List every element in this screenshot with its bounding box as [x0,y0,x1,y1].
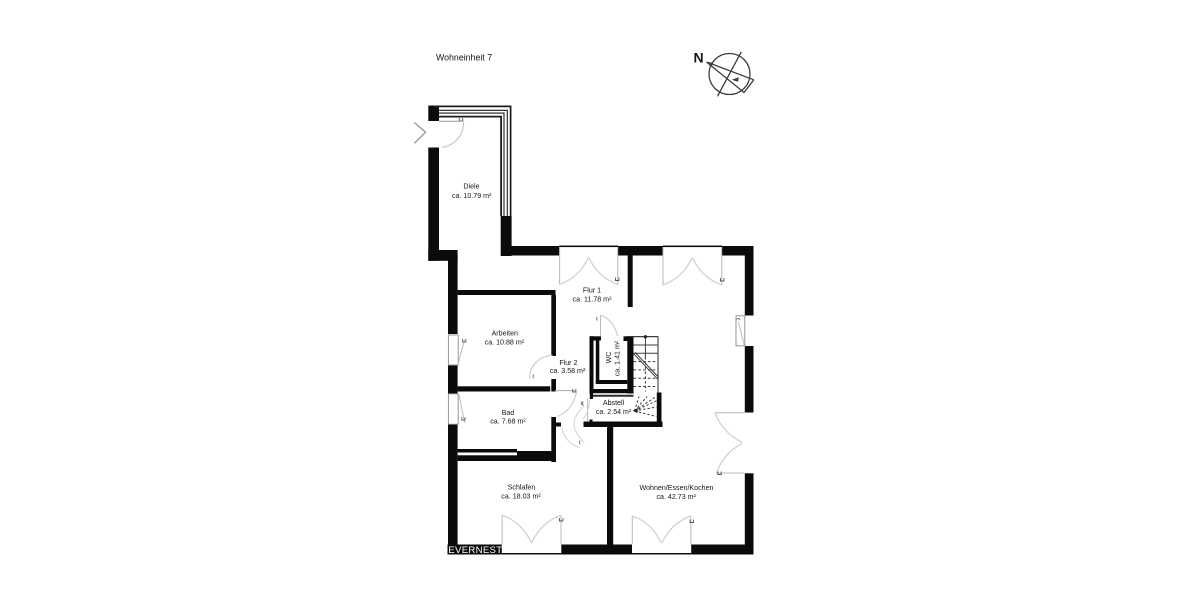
svg-text:ca. 1.41 m²: ca. 1.41 m² [614,340,622,376]
svg-text:Abstell: Abstell [603,399,625,407]
svg-text:ca. 11.78 m²: ca. 11.78 m² [573,295,613,303]
svg-text:Wohneinheit 7: Wohneinheit 7 [436,52,492,62]
svg-text:WC: WC [605,352,613,364]
svg-text:Wohnen/Essen/Kochen: Wohnen/Essen/Kochen [639,484,713,492]
svg-text:Arbeiten: Arbeiten [492,330,518,338]
svg-text:N: N [694,50,704,66]
svg-text:ca. 2.54 m²: ca. 2.54 m² [596,408,632,416]
svg-text:Schlafen: Schlafen [508,484,536,492]
svg-text:Bad: Bad [502,409,515,417]
svg-text:ca. 42.73 m²: ca. 42.73 m² [656,493,696,501]
svg-text:ca. 10.79 m²: ca. 10.79 m² [452,192,492,200]
svg-text:Flur 2: Flur 2 [559,359,577,367]
svg-text:ca. 7.68 m²: ca. 7.68 m² [490,418,526,426]
svg-text:ca. 18.03 m²: ca. 18.03 m² [501,493,541,501]
svg-text:ca. 10.88 m²: ca. 10.88 m² [485,338,525,346]
svg-text:ca. 3.58 m²: ca. 3.58 m² [550,367,586,375]
svg-text:Diele: Diele [463,182,479,190]
svg-text:EVERNEST: EVERNEST [448,545,502,556]
svg-text:Flur 1: Flur 1 [583,287,601,295]
